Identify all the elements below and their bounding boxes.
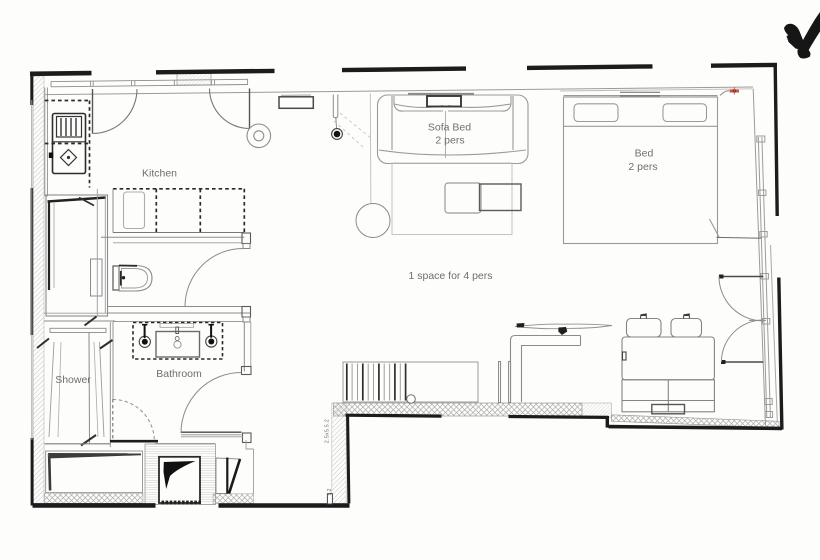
svg-text:5.2: 5.2: [327, 488, 333, 495]
svg-text:1 space for 4 pers: 1 space for 4 pers: [408, 270, 492, 282]
svg-text:Sofa Bed: Sofa Bed: [428, 122, 471, 134]
svg-text:2.5x5.5.2: 2.5x5.5.2: [325, 419, 331, 443]
svg-text:Shower: Shower: [55, 374, 91, 386]
svg-text:Bathroom: Bathroom: [156, 368, 202, 380]
svg-text:Kitchen: Kitchen: [142, 168, 177, 180]
svg-text:Bed: Bed: [635, 147, 654, 159]
svg-text:2 pers: 2 pers: [435, 135, 464, 147]
svg-text:2 pers: 2 pers: [628, 161, 657, 173]
